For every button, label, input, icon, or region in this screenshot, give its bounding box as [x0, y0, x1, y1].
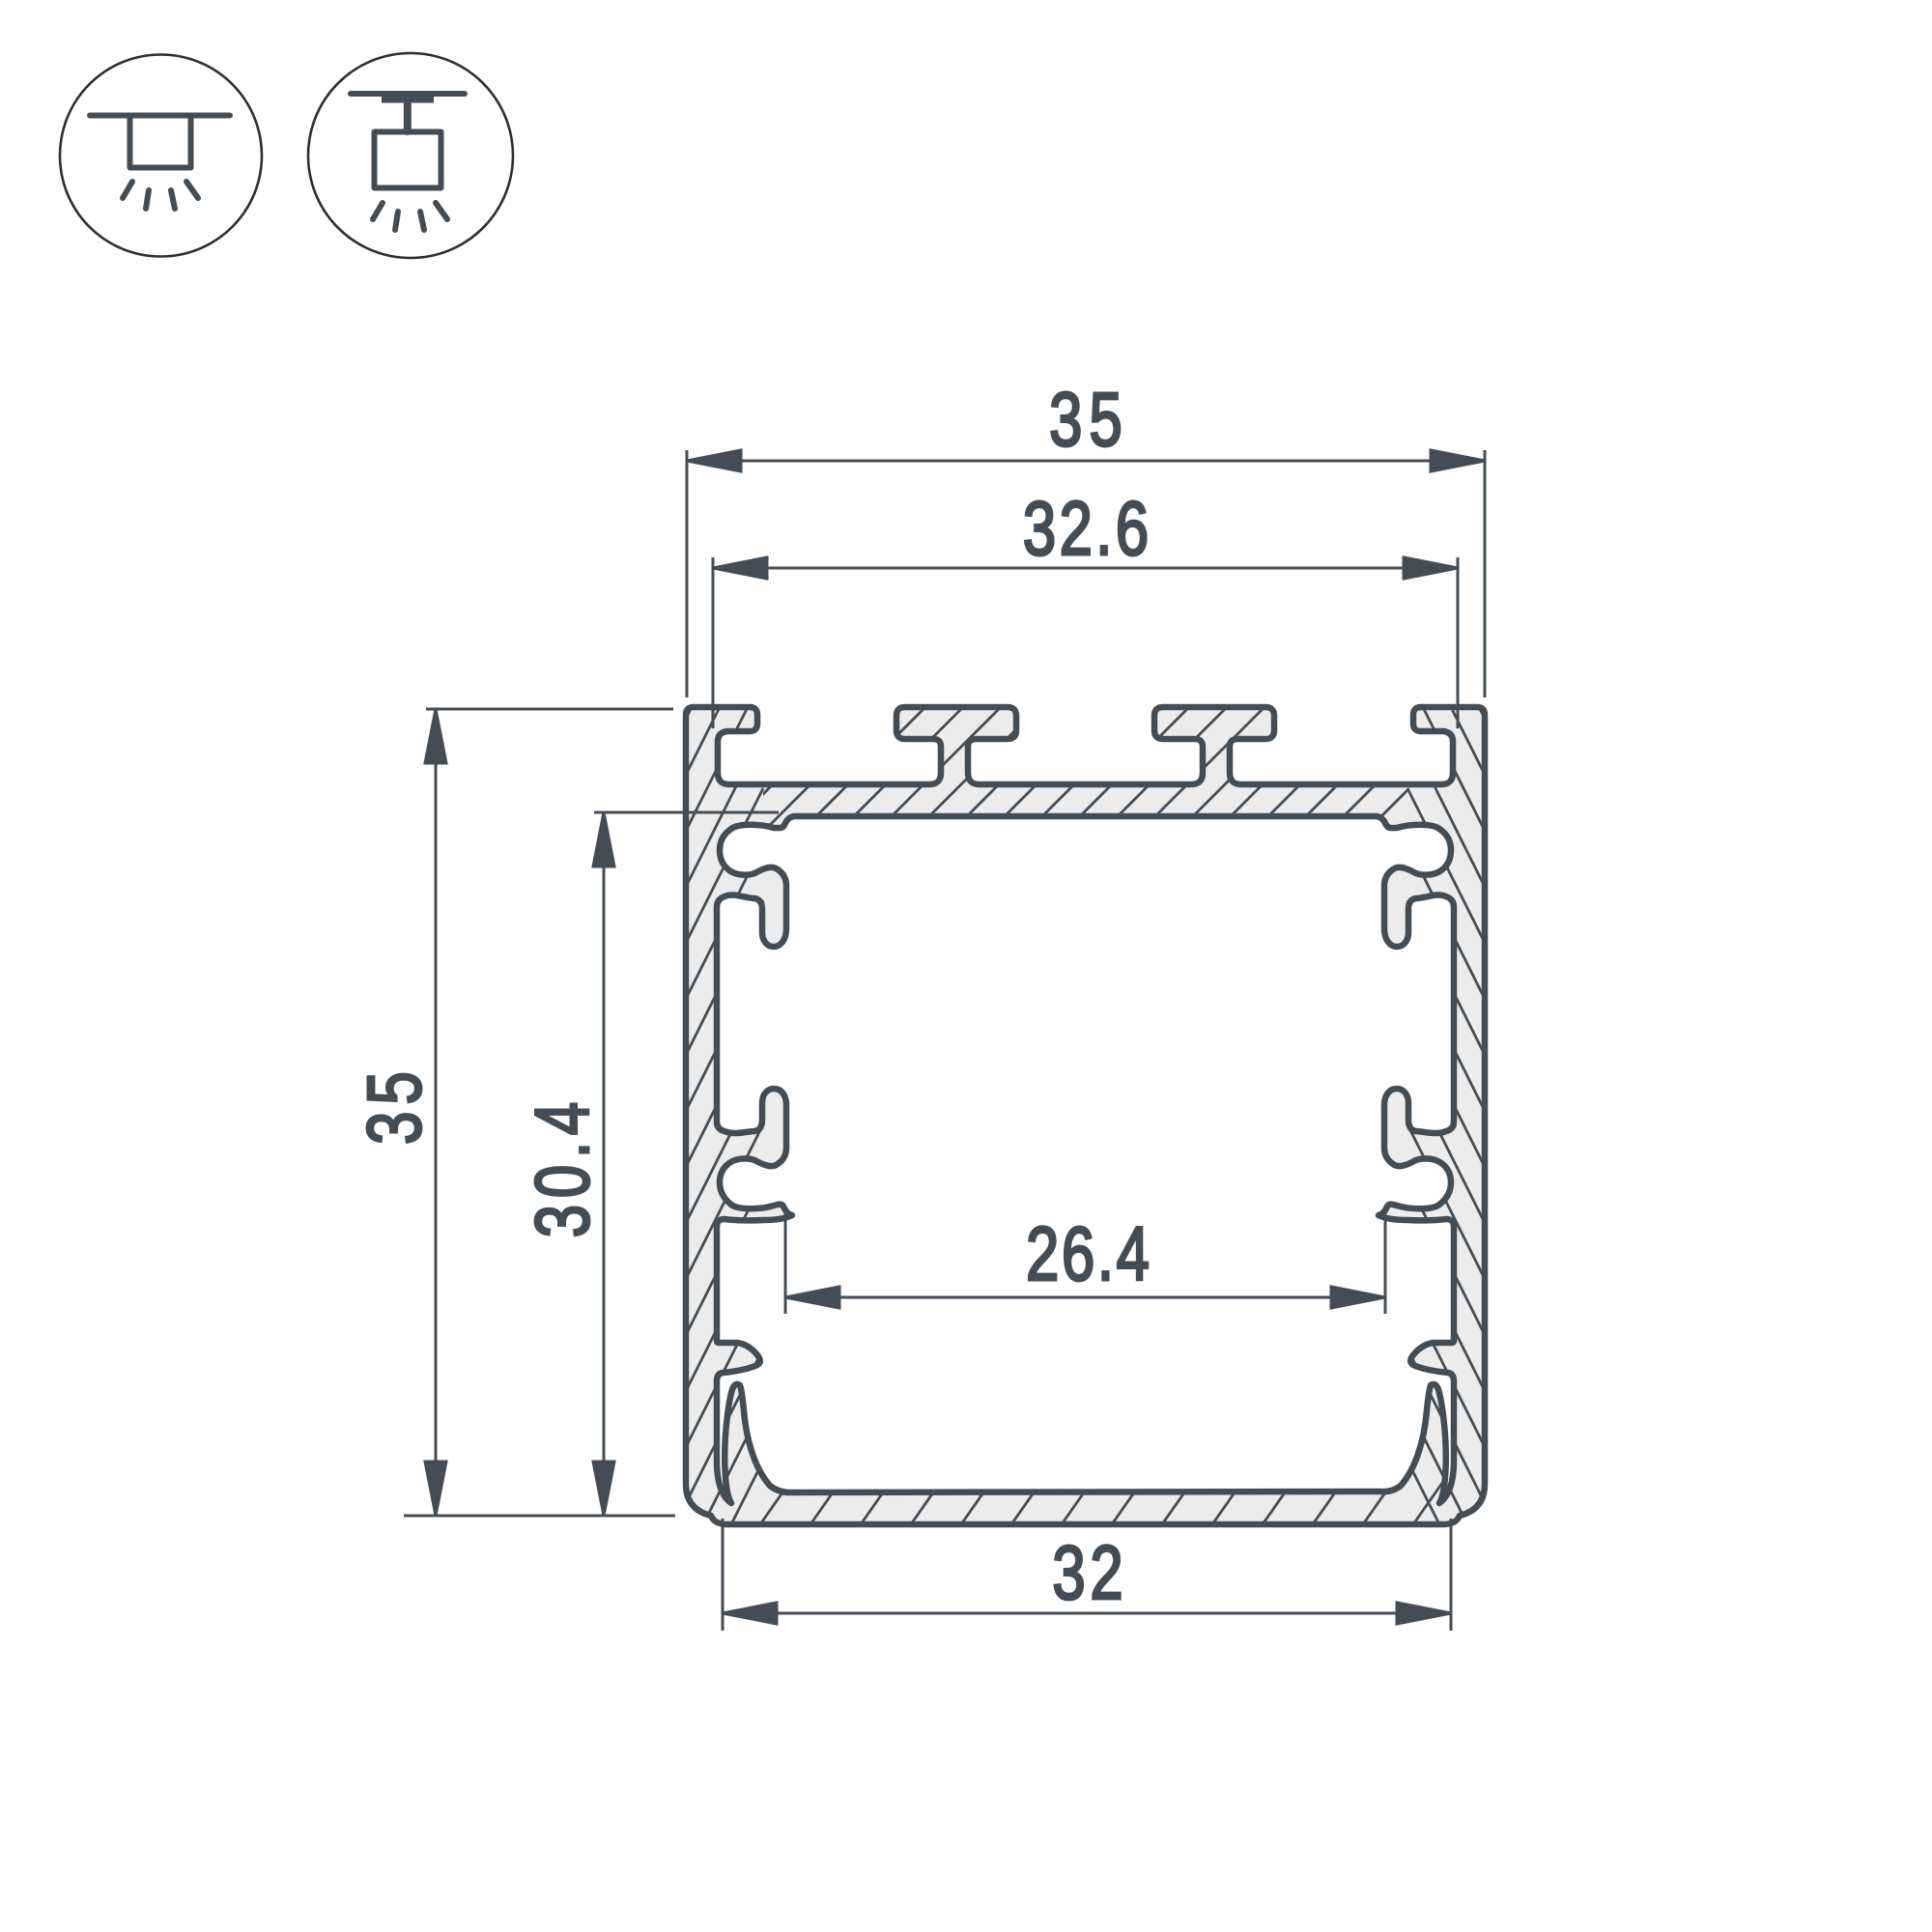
- svg-text:32: 32: [1052, 1531, 1122, 1616]
- svg-text:26.4: 26.4: [1026, 1212, 1150, 1297]
- svg-text:35: 35: [353, 1071, 438, 1145]
- svg-text:30.4: 30.4: [521, 1102, 606, 1237]
- svg-text:35: 35: [1049, 378, 1122, 463]
- svg-text:32.6: 32.6: [1023, 487, 1149, 572]
